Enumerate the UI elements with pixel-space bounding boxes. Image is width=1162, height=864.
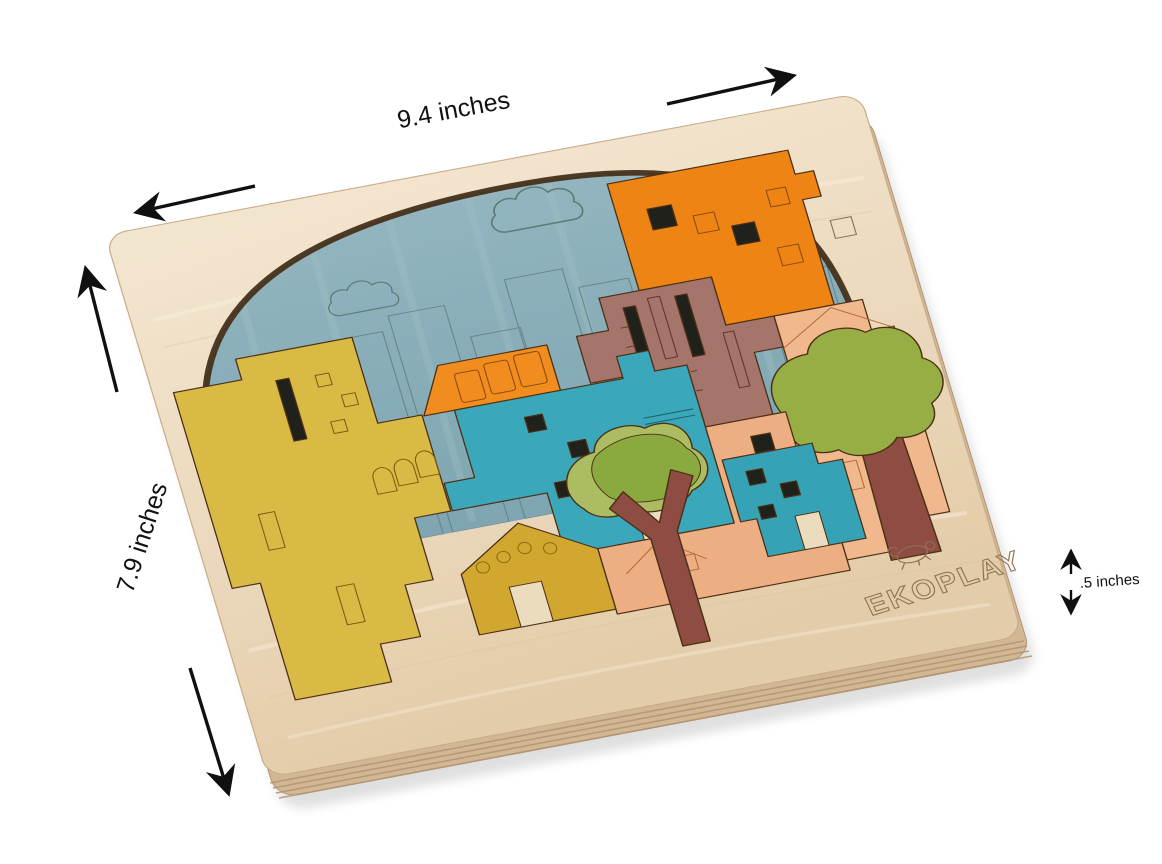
- window-cut: [758, 504, 776, 519]
- window-cut: [732, 222, 760, 245]
- puzzle-product-image: EKOPLAY 9.4 inches 7.9 inches .5 inches: [0, 0, 1162, 864]
- window-cut: [780, 481, 800, 498]
- window-cut: [746, 469, 766, 486]
- product-photo-stage: EKOPLAY 9.4 inches 7.9 inches .5 inches: [0, 0, 1162, 864]
- window-cut: [751, 433, 775, 453]
- window-cut: [524, 414, 546, 432]
- window-cut: [647, 205, 677, 230]
